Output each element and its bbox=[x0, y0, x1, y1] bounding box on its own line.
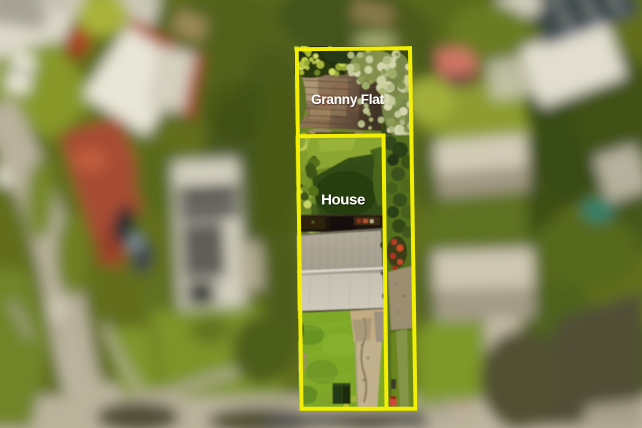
svg-text:Granny Flat: Granny Flat bbox=[311, 92, 385, 107]
svg-text:House: House bbox=[321, 192, 365, 209]
